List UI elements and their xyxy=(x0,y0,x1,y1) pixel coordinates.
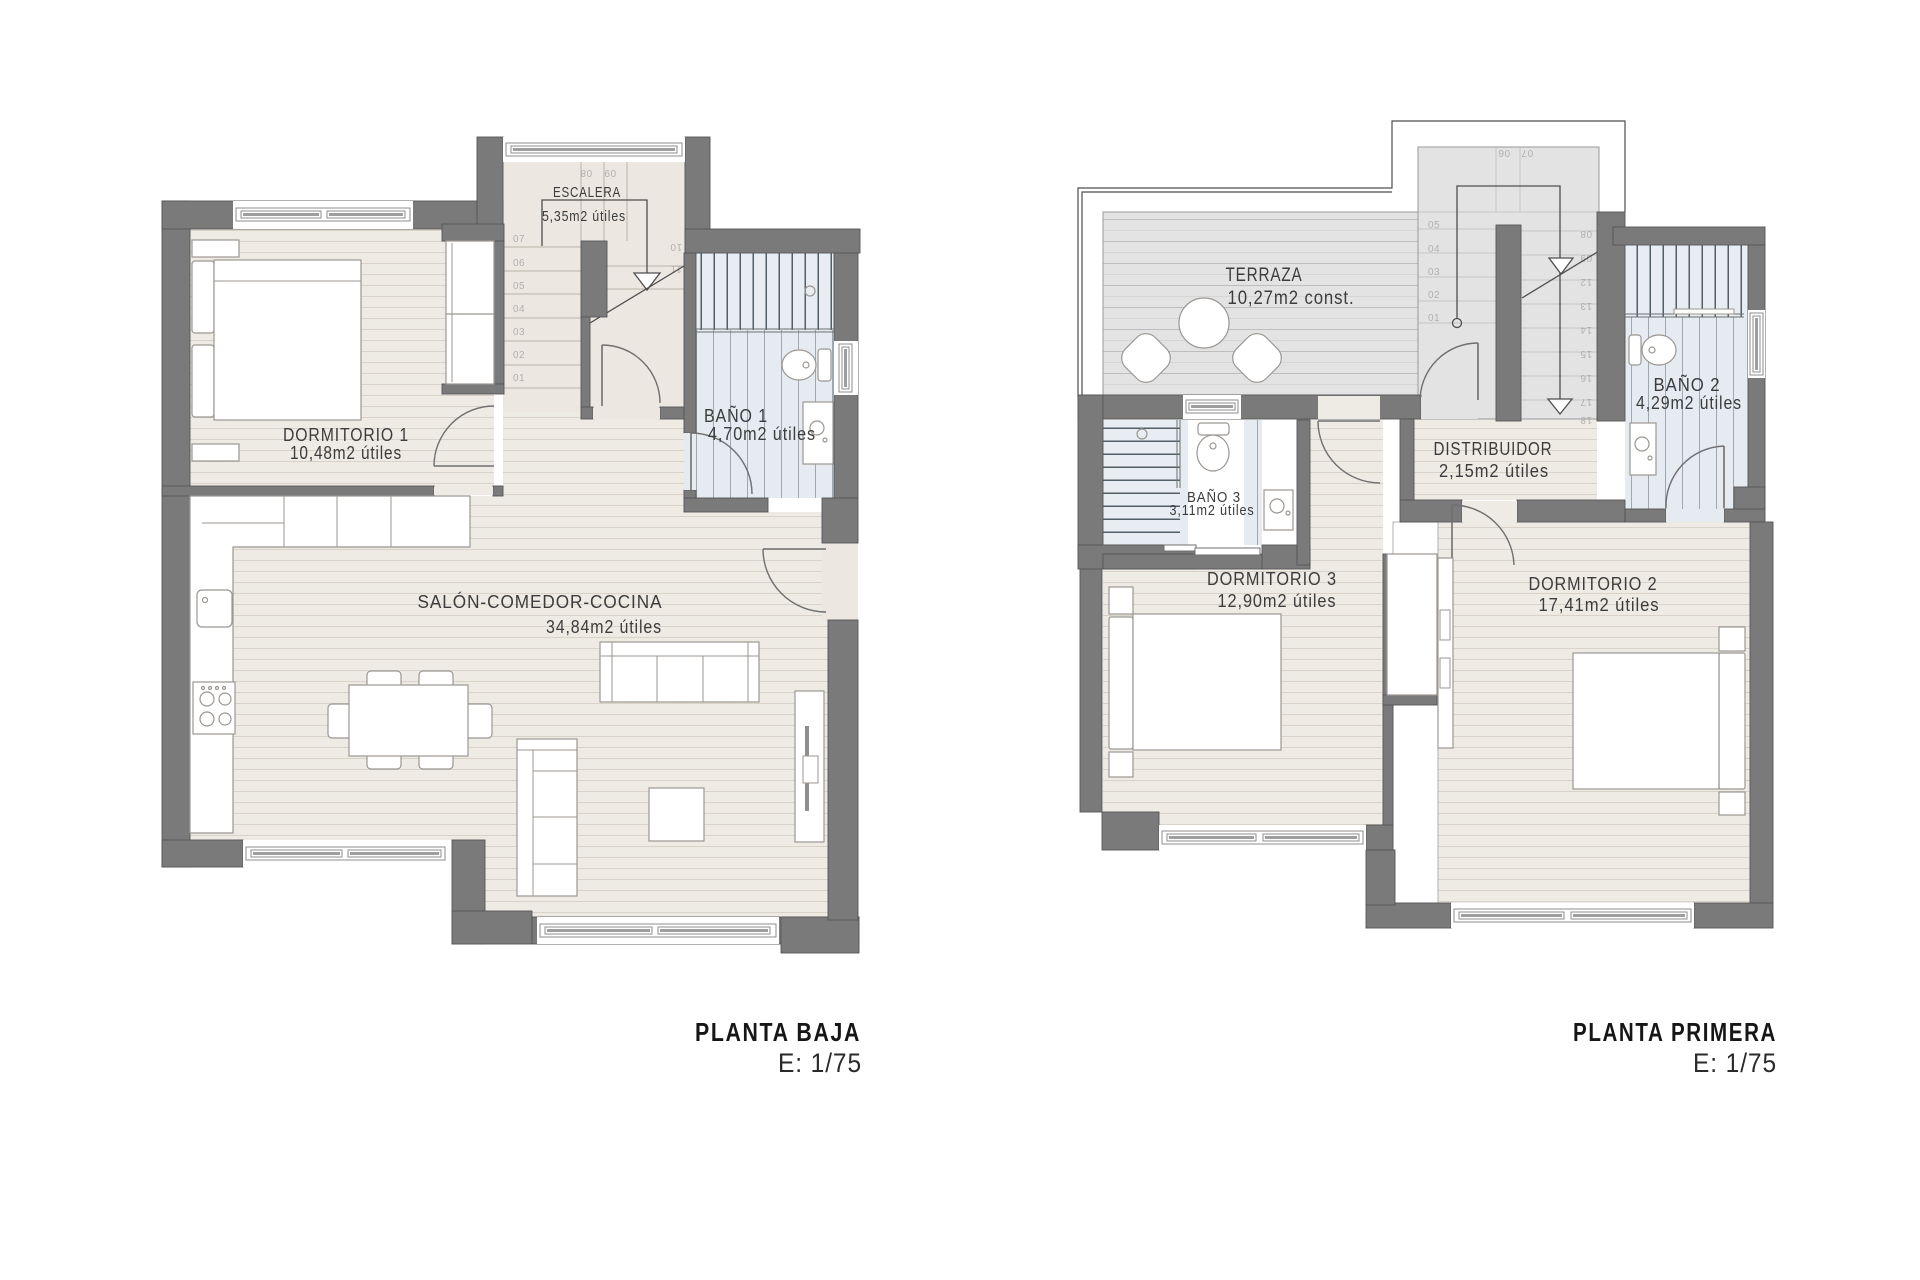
svg-text:4,29m2 útiles: 4,29m2 útiles xyxy=(1636,393,1742,413)
svg-text:18: 18 xyxy=(1580,414,1592,425)
svg-text:PLANTA BAJA: PLANTA BAJA xyxy=(695,1017,861,1047)
svg-text:4,70m2 útiles: 4,70m2 útiles xyxy=(708,424,816,444)
svg-text:E: 1/75: E: 1/75 xyxy=(1693,1048,1777,1078)
svg-text:08: 08 xyxy=(580,167,592,178)
svg-text:DORMITORIO 3: DORMITORIO 3 xyxy=(1207,569,1337,589)
svg-text:34,84m2 útiles: 34,84m2 útiles xyxy=(546,617,662,637)
svg-text:17: 17 xyxy=(1580,396,1592,407)
svg-text:02: 02 xyxy=(1428,290,1440,301)
svg-text:TERRAZA: TERRAZA xyxy=(1226,265,1303,286)
svg-text:08: 08 xyxy=(1580,228,1592,239)
svg-text:SALÓN-COMEDOR-COCINA: SALÓN-COMEDOR-COCINA xyxy=(418,591,663,612)
svg-text:BAÑO 1: BAÑO 1 xyxy=(704,405,768,426)
svg-text:01: 01 xyxy=(513,373,525,384)
svg-text:04: 04 xyxy=(513,304,525,315)
svg-text:02: 02 xyxy=(513,350,525,361)
svg-text:06: 06 xyxy=(513,258,525,269)
svg-text:5,35m2 útiles: 5,35m2 útiles xyxy=(542,208,626,225)
svg-text:03: 03 xyxy=(1428,267,1440,278)
svg-text:BAÑO 2: BAÑO 2 xyxy=(1654,374,1721,395)
svg-text:PLANTA PRIMERA: PLANTA PRIMERA xyxy=(1573,1017,1777,1047)
svg-text:06: 06 xyxy=(1498,147,1510,158)
svg-text:01: 01 xyxy=(1428,313,1440,324)
svg-text:10,48m2 útiles: 10,48m2 útiles xyxy=(290,443,402,463)
svg-text:12,90m2 útiles: 12,90m2 útiles xyxy=(1218,591,1337,611)
svg-text:13: 13 xyxy=(1580,300,1592,311)
svg-text:03: 03 xyxy=(513,327,525,338)
svg-text:2,15m2 útiles: 2,15m2 útiles xyxy=(1439,461,1549,481)
svg-text:09: 09 xyxy=(604,167,616,178)
svg-text:10,27m2 const.: 10,27m2 const. xyxy=(1228,288,1355,309)
svg-text:04: 04 xyxy=(1428,244,1440,255)
svg-text:07: 07 xyxy=(513,234,525,245)
svg-text:3,11m2 útiles: 3,11m2 útiles xyxy=(1170,502,1255,519)
svg-text:ESCALERA: ESCALERA xyxy=(553,184,621,201)
svg-text:15: 15 xyxy=(1580,348,1592,359)
svg-text:16: 16 xyxy=(1580,372,1592,383)
svg-text:05: 05 xyxy=(513,281,525,292)
svg-text:14: 14 xyxy=(1580,324,1592,335)
svg-text:DISTRIBUIDOR: DISTRIBUIDOR xyxy=(1434,439,1553,459)
svg-text:12: 12 xyxy=(1580,276,1592,287)
svg-text:07: 07 xyxy=(1521,147,1533,158)
svg-text:10: 10 xyxy=(670,241,682,252)
svg-text:DORMITORIO 1: DORMITORIO 1 xyxy=(283,425,409,445)
svg-text:17,41m2 útiles: 17,41m2 útiles xyxy=(1539,595,1660,615)
svg-text:E: 1/75: E: 1/75 xyxy=(778,1048,862,1078)
svg-text:05: 05 xyxy=(1428,220,1440,231)
svg-text:DORMITORIO 2: DORMITORIO 2 xyxy=(1529,574,1658,594)
